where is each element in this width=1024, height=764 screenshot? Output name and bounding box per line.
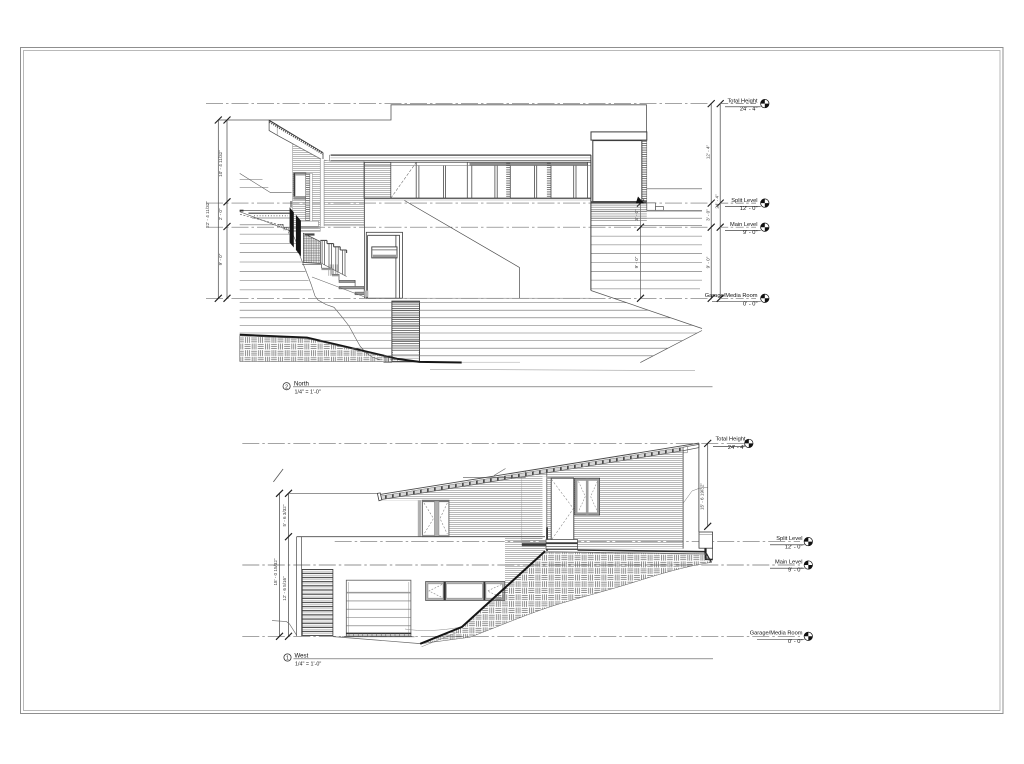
svg-text:9' - 0": 9' - 0": [218, 253, 223, 265]
svg-text:North: North: [294, 380, 309, 387]
svg-text:Total Height: Total Height: [715, 437, 745, 443]
svg-text:12' - 4": 12' - 4": [706, 145, 711, 160]
svg-text:12' - 0": 12' - 0": [785, 544, 803, 550]
svg-text:West: West: [295, 652, 309, 659]
svg-text:2' - 0": 2' - 0": [218, 208, 223, 220]
svg-text:Garage/Media Room: Garage/Media Room: [750, 631, 803, 637]
svg-text:12' - 0": 12' - 0": [740, 206, 758, 212]
svg-text:18' - 0 15/32": 18' - 0 15/32": [273, 558, 278, 585]
svg-text:3' - 0": 3' - 0": [706, 209, 711, 221]
svg-text:0' - 0": 0' - 0": [788, 639, 803, 645]
svg-text:22' - 4 11/32": 22' - 4 11/32": [205, 201, 210, 228]
svg-text:24' - 4": 24' - 4": [715, 194, 720, 209]
svg-text:24' - 4": 24' - 4": [740, 107, 758, 113]
svg-text:9' - 0": 9' - 0": [743, 230, 758, 236]
svg-text:1: 1: [286, 656, 289, 662]
svg-text:12' - 6 5/16": 12' - 6 5/16": [282, 576, 287, 601]
svg-text:5' - 6 3/32": 5' - 6 3/32": [282, 504, 287, 526]
svg-text:9' - 0": 9' - 0": [706, 256, 711, 268]
svg-text:0' - 0": 0' - 0": [743, 301, 758, 307]
svg-text:9' - 0": 9' - 0": [788, 568, 803, 574]
svg-text:15' - 6 19/32": 15' - 6 19/32": [699, 483, 704, 510]
svg-text:24' - 4": 24' - 4": [728, 445, 746, 451]
svg-text:1/4" = 1'-0": 1/4" = 1'-0": [295, 389, 321, 395]
svg-text:Split Level: Split Level: [776, 536, 802, 542]
svg-text:Main Level: Main Level: [775, 559, 803, 565]
svg-text:2: 2: [285, 384, 288, 390]
svg-text:10' - 4 11/32": 10' - 4 11/32": [218, 150, 223, 177]
svg-text:1/4" = 1'-0": 1/4" = 1'-0": [295, 662, 321, 668]
